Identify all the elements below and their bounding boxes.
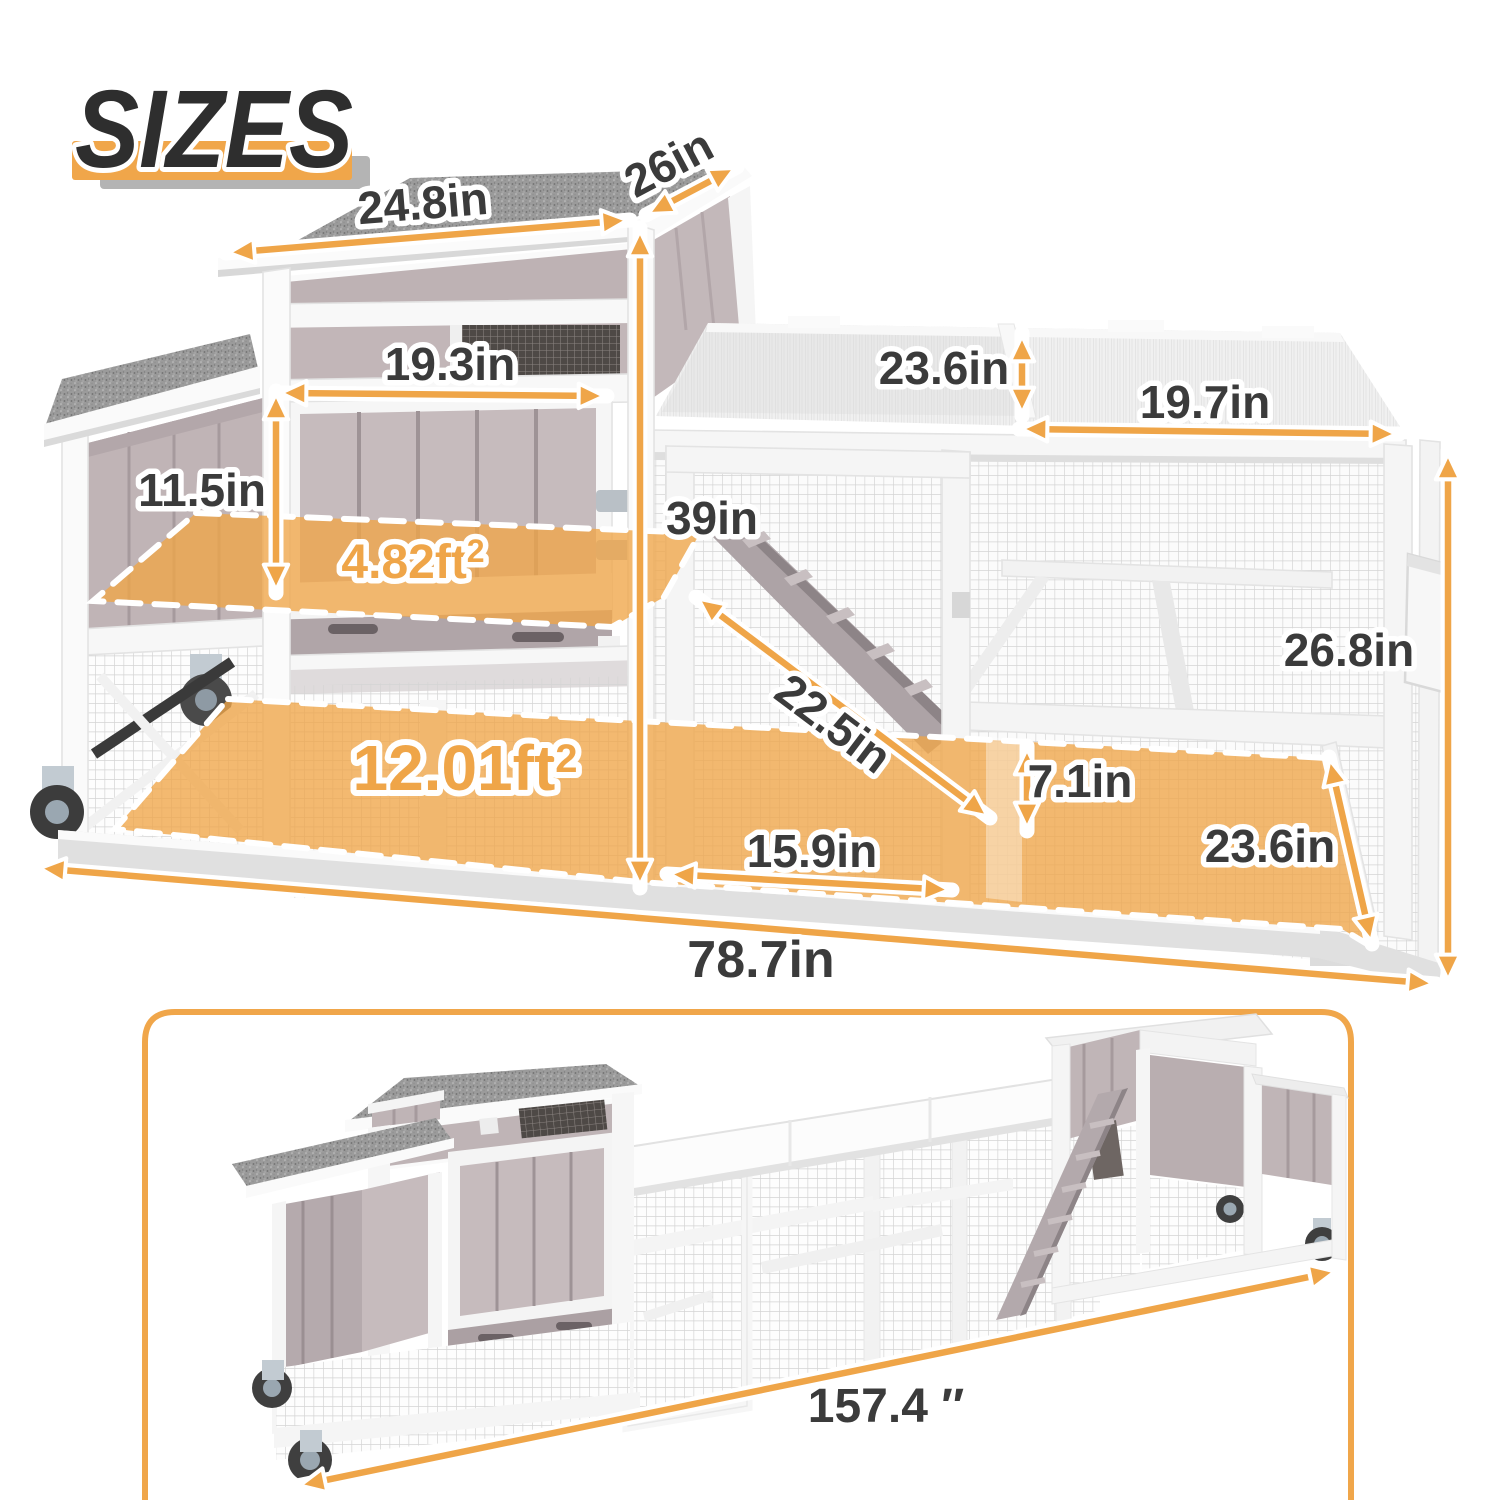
svg-text:7.1in: 7.1in <box>1028 755 1133 807</box>
svg-text:12.01ft2: 12.01ft2 <box>352 732 577 804</box>
svg-text:26.8in: 26.8in <box>1284 624 1414 676</box>
svg-text:11.5in: 11.5in <box>138 464 266 516</box>
svg-text:78.7in: 78.7in <box>687 931 834 989</box>
svg-text:SIZES: SIZES <box>75 68 353 191</box>
svg-text:19.3in: 19.3in <box>385 338 515 390</box>
svg-text:4.82ft2: 4.82ft2 <box>341 533 484 589</box>
svg-text:23.6in: 23.6in <box>879 342 1009 394</box>
svg-text:19.7in: 19.7in <box>1140 376 1270 428</box>
svg-text:23.6in: 23.6in <box>1205 820 1335 872</box>
svg-text:15.9in: 15.9in <box>747 825 877 877</box>
svg-text:39in: 39in <box>666 492 758 544</box>
svg-text:157.4 ″: 157.4 ″ <box>808 1380 964 1433</box>
svg-text:24.8in: 24.8in <box>356 172 490 234</box>
